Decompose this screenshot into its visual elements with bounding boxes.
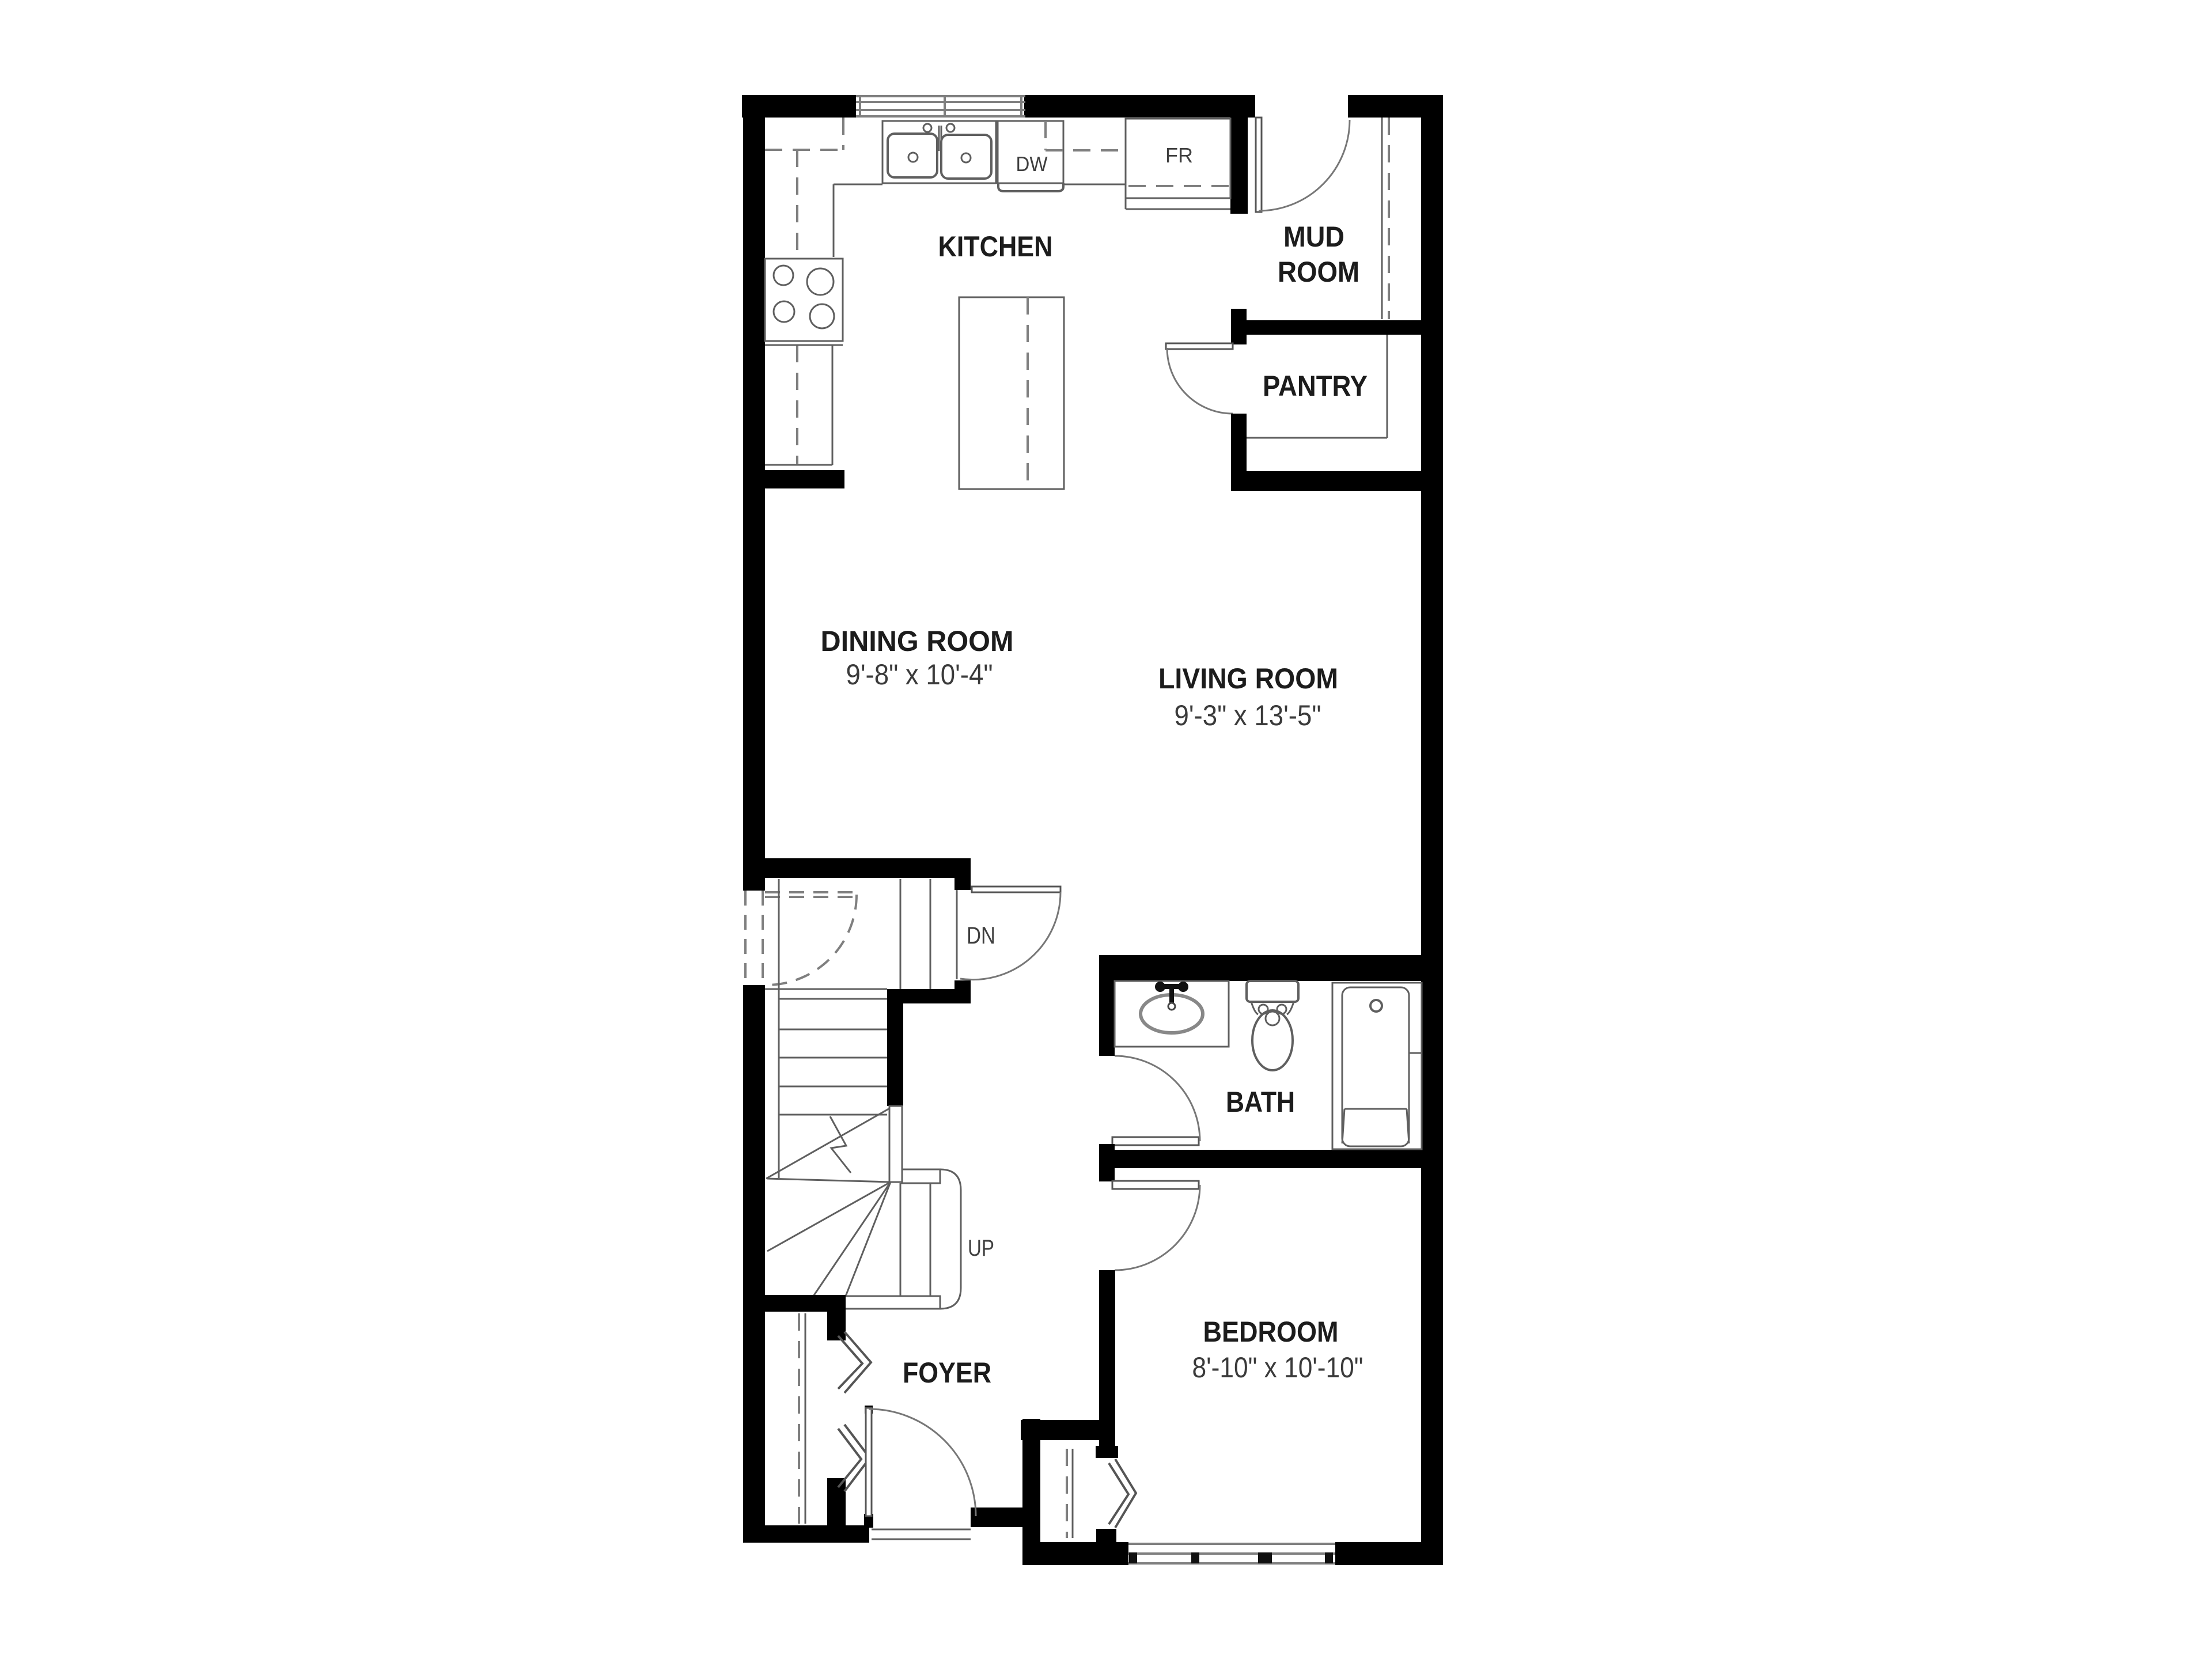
svg-text:BEDROOM: BEDROOM bbox=[1203, 1316, 1339, 1348]
svg-text:DINING ROOM: DINING ROOM bbox=[821, 625, 1014, 657]
svg-text:DN: DN bbox=[967, 922, 995, 949]
svg-text:KITCHEN: KITCHEN bbox=[938, 230, 1053, 263]
svg-text:UP: UP bbox=[968, 1236, 994, 1261]
svg-text:FOYER: FOYER bbox=[903, 1357, 991, 1389]
svg-text:ROOM: ROOM bbox=[1278, 256, 1359, 288]
svg-text:LIVING ROOM: LIVING ROOM bbox=[1158, 662, 1338, 695]
svg-text:BATH: BATH bbox=[1226, 1086, 1295, 1118]
svg-text:9'-8" x 10'-4": 9'-8" x 10'-4" bbox=[846, 658, 993, 691]
svg-text:PANTRY: PANTRY bbox=[1263, 370, 1368, 402]
svg-text:DW: DW bbox=[1016, 152, 1048, 176]
svg-text:MUD: MUD bbox=[1283, 221, 1344, 253]
svg-text:9'-3" x 13'-5": 9'-3" x 13'-5" bbox=[1175, 699, 1321, 732]
svg-text:FR: FR bbox=[1165, 143, 1193, 167]
svg-text:8'-10" x 10'-10": 8'-10" x 10'-10" bbox=[1192, 1351, 1363, 1384]
